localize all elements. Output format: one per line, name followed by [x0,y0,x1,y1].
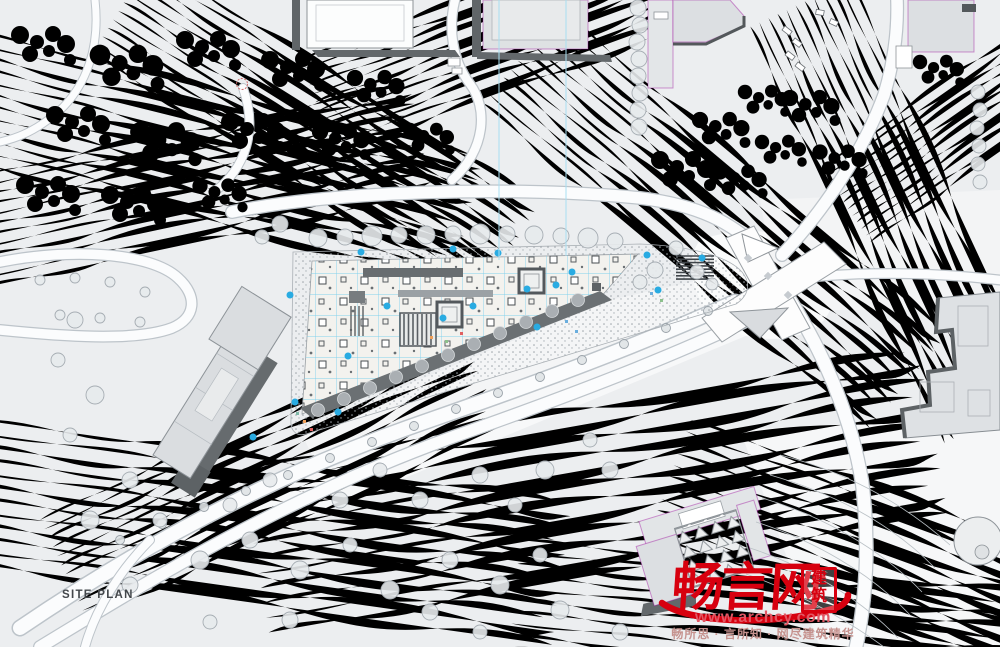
brand-url: www.archcy.com [648,610,878,626]
brand-text: 畅言网 [670,562,821,614]
courtyard-a [437,302,462,327]
louver-roof [400,313,436,346]
courtyard-b [519,269,544,293]
badge-char-bottom: 筑 [804,588,834,606]
brand-tagline: 畅所思 · 言所知 · 网尽建筑精华 [648,628,878,640]
brand-badge: 建 筑 [801,567,837,613]
drawing-title: SITE PLAN [62,589,134,601]
badge-char-top: 建 [804,570,834,588]
site-plan-drawing [0,0,1000,647]
site-plan-page: SITE PLAN 畅言网 建 筑 www.archcy.com 畅所思 · 言… [0,0,1000,647]
